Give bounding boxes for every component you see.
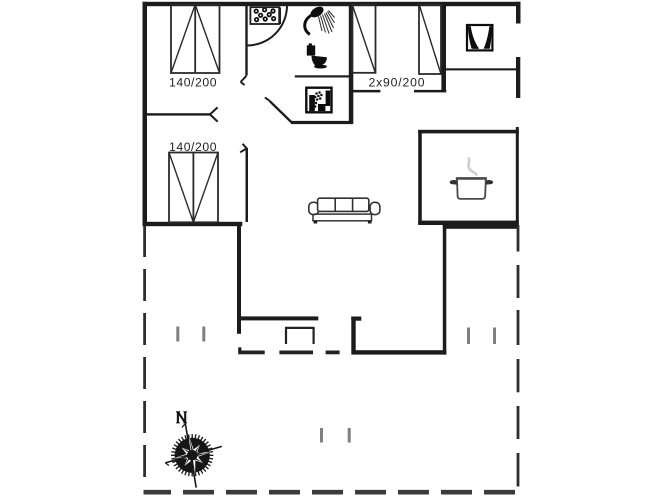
svg-text:140/200: 140/200	[169, 76, 217, 90]
svg-text:140/200: 140/200	[169, 140, 217, 154]
svg-text:2x90/200: 2x90/200	[369, 76, 425, 90]
